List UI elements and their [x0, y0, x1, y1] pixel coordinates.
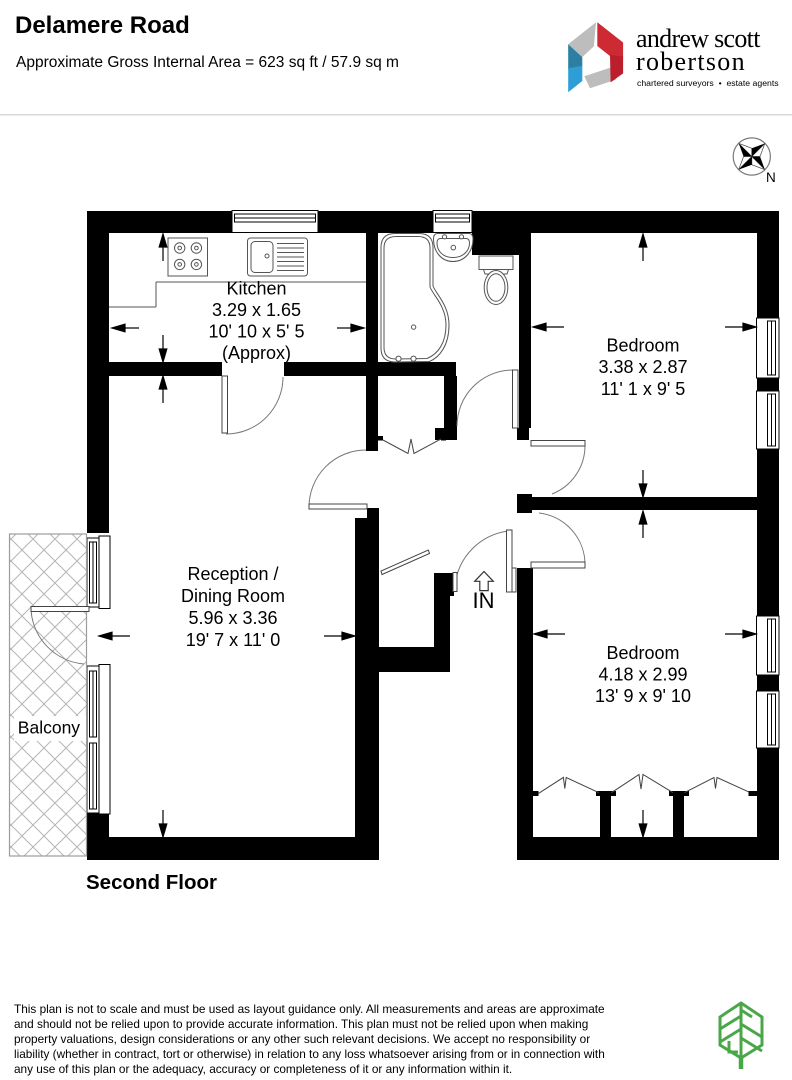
svg-text:any use of this plan or the ad: any use of this plan or the adequacy, ac… — [14, 1062, 512, 1076]
svg-text:(Approx): (Approx) — [222, 343, 291, 363]
svg-text:Dining Room: Dining Room — [181, 586, 285, 606]
svg-text:Reception /: Reception / — [187, 564, 278, 584]
svg-text:10' 10 x 5' 5: 10' 10 x 5' 5 — [209, 322, 305, 342]
svg-text:5.96 x 3.36: 5.96 x 3.36 — [188, 608, 277, 628]
svg-text:property valuations, design co: property valuations, design consideratio… — [14, 1032, 590, 1046]
svg-text:4.18 x 2.99: 4.18 x 2.99 — [598, 665, 687, 685]
svg-text:19' 7 x 11' 0: 19' 7 x 11' 0 — [186, 630, 281, 650]
svg-text:3.38 x 2.87: 3.38 x 2.87 — [598, 357, 687, 377]
svg-text:11' 1 x 9' 5: 11' 1 x 9' 5 — [601, 379, 686, 399]
svg-text:Bedroom: Bedroom — [606, 336, 679, 356]
svg-text:robertson: robertson — [636, 47, 746, 76]
svg-text:Bedroom: Bedroom — [606, 643, 679, 663]
svg-text:3.29 x 1.65: 3.29 x 1.65 — [212, 300, 301, 320]
svg-text:liability (whether in contract: liability (whether in contract, tort or … — [14, 1047, 605, 1061]
svg-text:and should not be relied upon: and should not be relied upon to provide… — [14, 1017, 588, 1031]
svg-text:N: N — [766, 170, 776, 185]
svg-text:IN: IN — [473, 588, 495, 613]
svg-text:Second Floor: Second Floor — [86, 871, 217, 894]
svg-text:Kitchen: Kitchen — [226, 279, 286, 299]
svg-text:chartered surveyors • estate: chartered surveyors • estate agents — [637, 78, 779, 88]
svg-text:This plan is not to scale and: This plan is not to scale and must be us… — [14, 1002, 605, 1016]
svg-text:Approximate Gross Internal Are: Approximate Gross Internal Area = 623 sq… — [16, 54, 399, 71]
svg-text:Balcony: Balcony — [18, 718, 81, 738]
svg-text:13' 9 x 9' 10: 13' 9 x 9' 10 — [595, 686, 691, 706]
svg-text:Delamere Road: Delamere Road — [15, 12, 190, 39]
